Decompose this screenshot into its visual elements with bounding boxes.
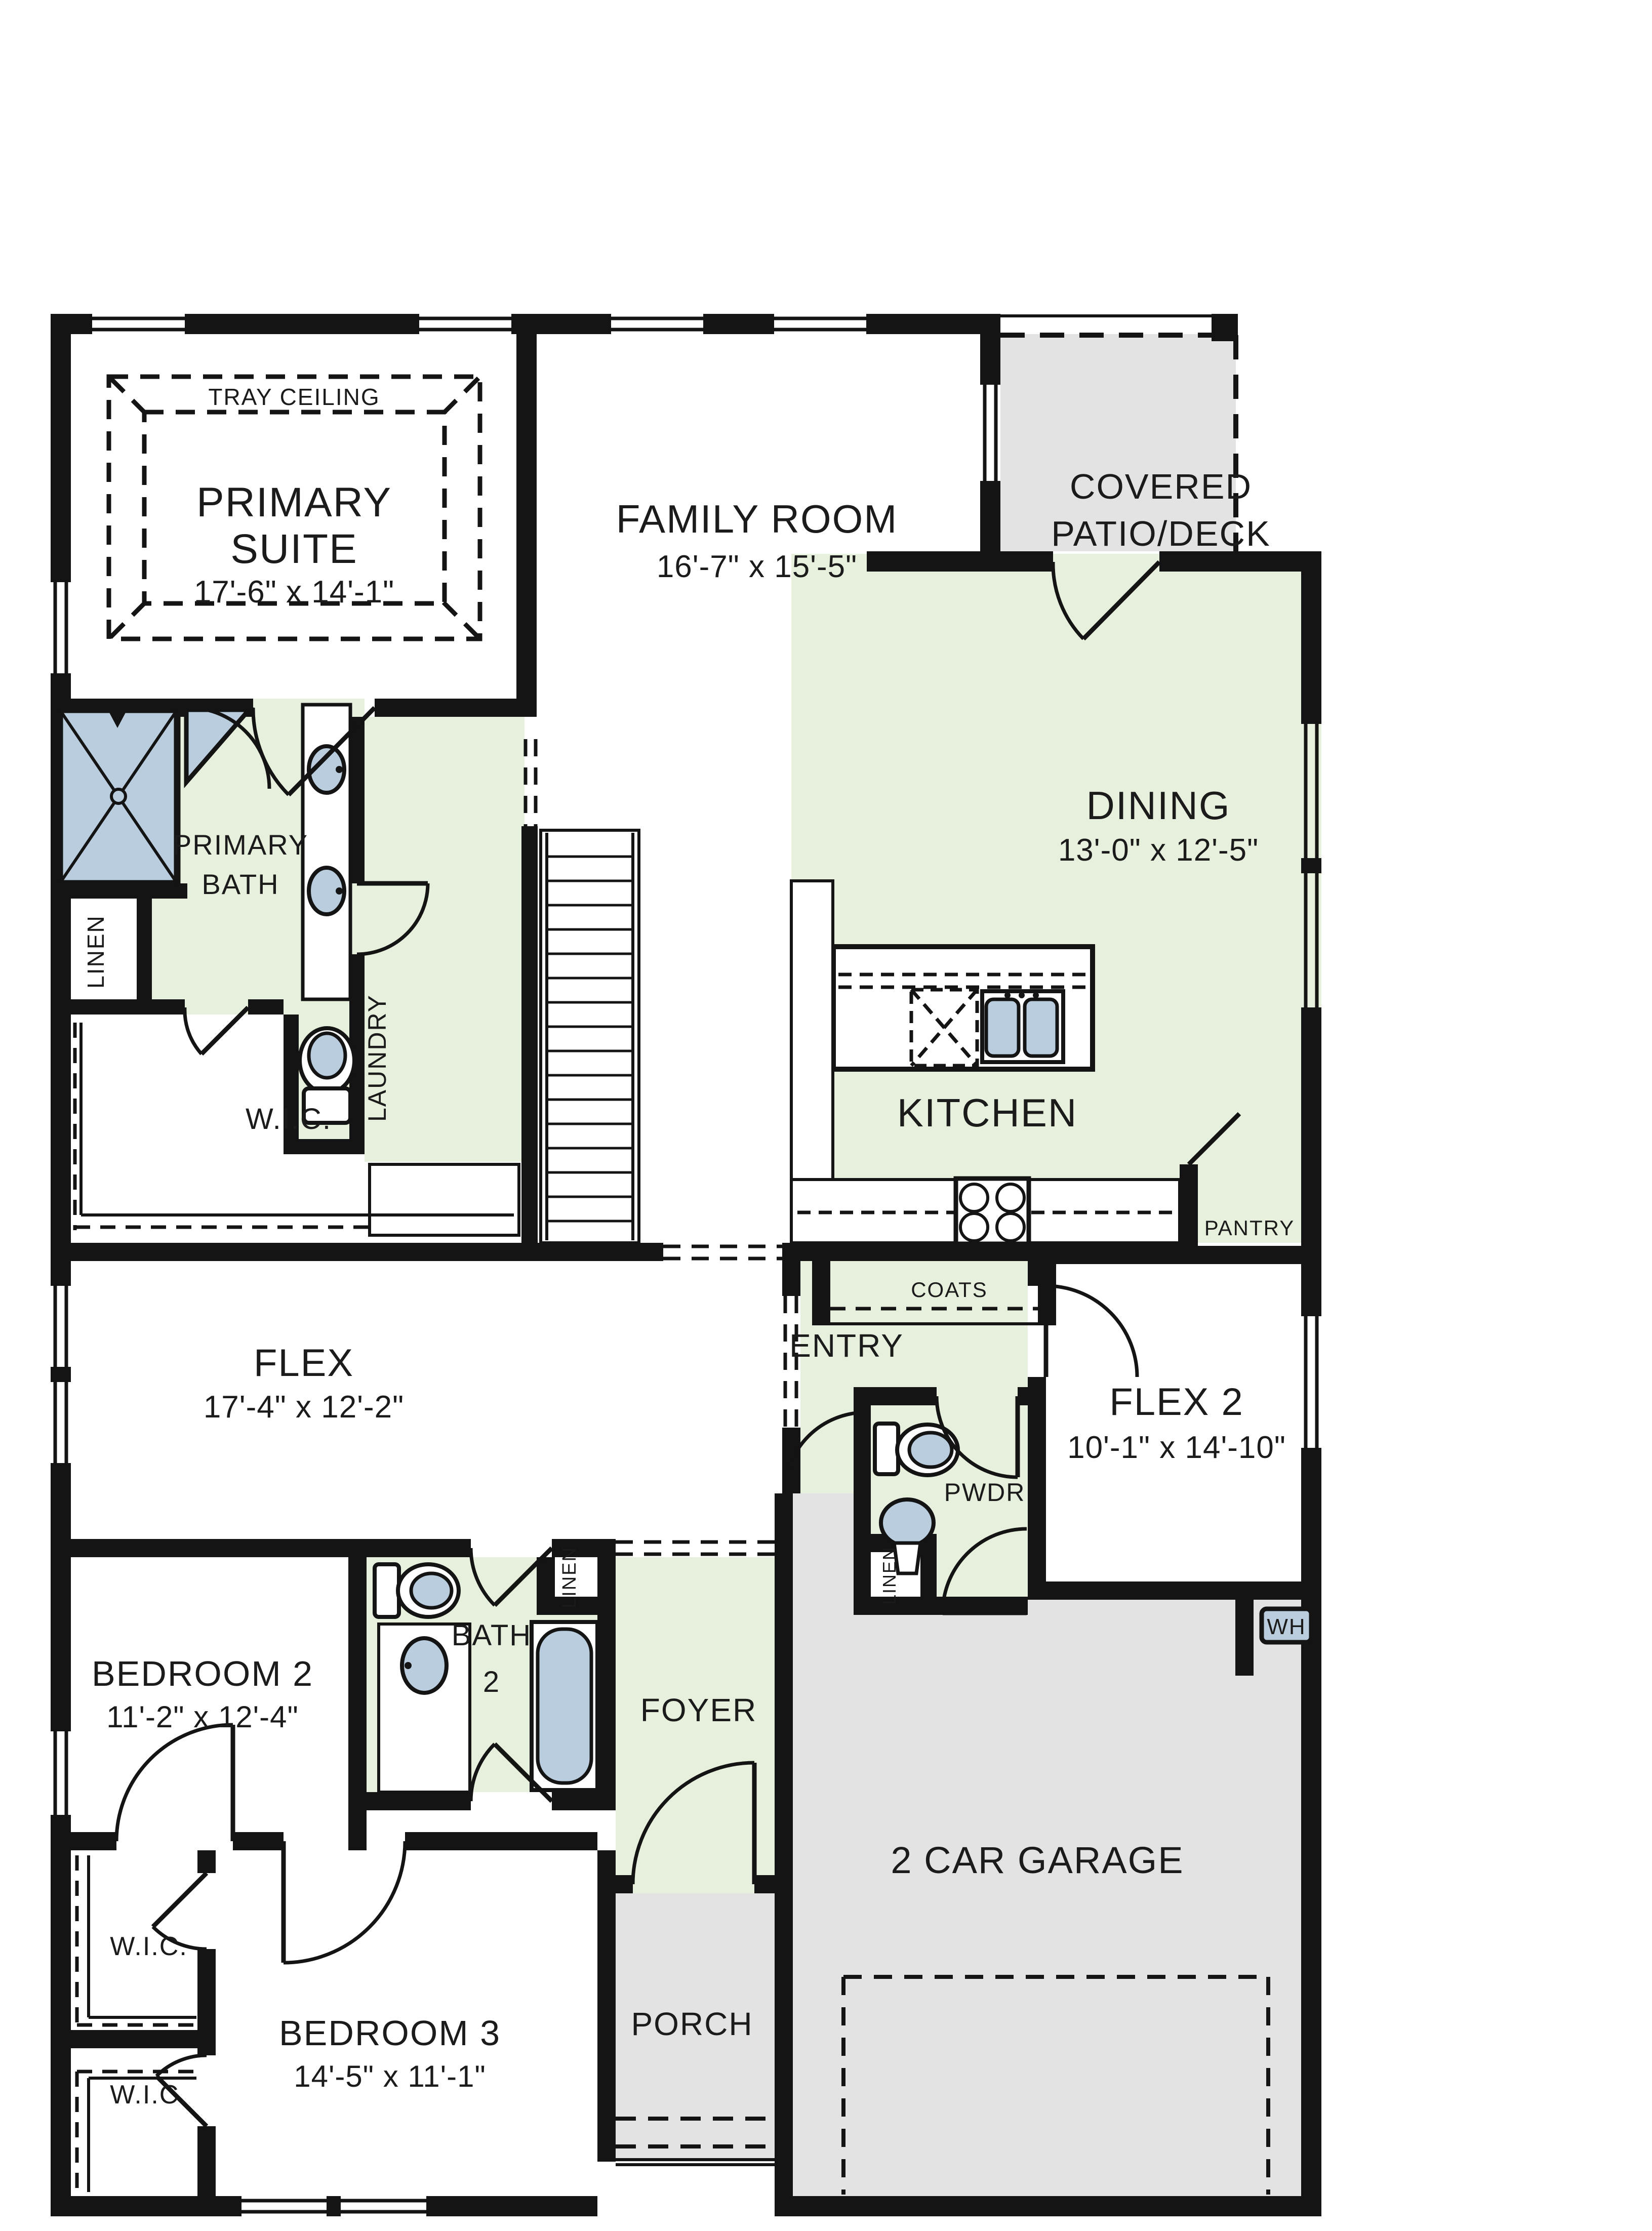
room-label-primary-suite-2: SUITE: [230, 526, 357, 572]
closet-label-wic-upper: W.I.C.: [110, 1932, 188, 1961]
room-label-bath2: BATH: [452, 1619, 532, 1652]
floor-plan-svg: TRAY CEILING PRIMARY SUITE 17'-6" x 14'-…: [0, 0, 1652, 2231]
room-dims-dining: 13'-0" x 12'-5": [1058, 833, 1259, 868]
dining-kitchen-area: [791, 554, 1321, 1243]
room-dims-primary-suite: 17'-6" x 14'-1": [194, 575, 394, 610]
tray-ceiling-label: TRAY CEILING: [208, 384, 380, 410]
room-dims-family-room: 16'-7" x 15'-5": [657, 549, 857, 584]
room-dims-bedroom3: 14'-5" x 11'-1": [294, 2059, 486, 2093]
room-label-flex2: FLEX 2: [1109, 1381, 1243, 1424]
room-label-garage: 2 CAR GARAGE: [891, 1839, 1184, 1881]
primary-vanity: [303, 705, 350, 999]
room-label-covered-patio: COVERED: [1070, 467, 1252, 506]
closet-label-linen-bath2: LINEN: [559, 1547, 580, 1608]
room-label-bath2-2: 2: [483, 1666, 500, 1698]
water-heater-label: WH: [1267, 1614, 1306, 1639]
laundry-counter: [370, 1164, 519, 1235]
closet-label-linen-pwdr: LINEN: [879, 1546, 900, 1605]
room-label-porch: PORCH: [631, 2006, 753, 2042]
room-label-foyer: FOYER: [640, 1692, 757, 1728]
closet-label-coats: COATS: [911, 1278, 988, 1302]
bathtub-icon: [532, 1622, 597, 1790]
room-label-family-room: FAMILY ROOM: [616, 497, 898, 541]
closet-label-wic-primary: W.I.C.: [246, 1103, 332, 1135]
room-label-primary-suite: PRIMARY: [196, 479, 392, 525]
room-dims-flex: 17'-4" x 12'-2": [204, 1390, 404, 1425]
floor-plan-page: TRAY CEILING PRIMARY SUITE 17'-6" x 14'-…: [0, 0, 1652, 2231]
room-label-bedroom2: BEDROOM 2: [92, 1654, 313, 1693]
room-label-primary-bath-2: BATH: [202, 868, 279, 900]
stairs: [541, 830, 639, 1243]
room-label-laundry: LAUNDRY: [363, 994, 391, 1122]
room-label-flex: FLEX: [254, 1342, 354, 1385]
kitchen-left-counter: [791, 881, 833, 1180]
range-icon: [956, 1179, 1029, 1244]
sink-double-icon: [982, 991, 1063, 1062]
closet-label-wic-lower: W.I.C.: [110, 2080, 188, 2110]
closet-label-linen-primary: LINEN: [83, 915, 109, 988]
room-dims-bedroom2: 11'-2" x 12'-4": [106, 1700, 299, 1734]
kitchen-island: [833, 947, 1093, 1069]
room-dims-flex2: 10'-1" x 14'-10": [1067, 1430, 1286, 1465]
room-label-primary-bath: PRIMARY: [173, 829, 308, 861]
room-label-entry: ENTRY: [789, 1327, 904, 1364]
toilet-icon: [375, 1564, 459, 1617]
area-fills: [71, 334, 1321, 2196]
room-label-kitchen: KITCHEN: [897, 1090, 1077, 1135]
room-label-covered-patio-2: PATIO/DECK: [1051, 514, 1271, 553]
room-label-bedroom3: BEDROOM 3: [279, 2013, 501, 2053]
closet-label-pantry: PANTRY: [1204, 1216, 1295, 1240]
room-label-pwdr: PWDR: [944, 1478, 1026, 1507]
room-label-dining: DINING: [1086, 783, 1231, 828]
